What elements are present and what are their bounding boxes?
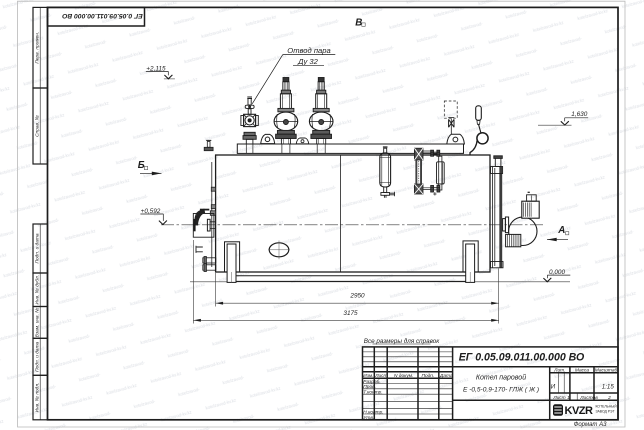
svg-text:Е -0,5-0,9-170- ГЛЖ ( Ж ): Е -0,5-0,9-170- ГЛЖ ( Ж )	[463, 387, 539, 394]
svg-text:Котел паровой: Котел паровой	[476, 374, 526, 382]
svg-text:2950: 2950	[349, 293, 365, 300]
svg-text:Пров.: Пров.	[363, 384, 376, 390]
svg-text:ЕГ 0.05.09.011.00.000 ВО: ЕГ 0.05.09.011.00.000 ВО	[459, 351, 585, 363]
svg-text:Изм.: Изм.	[363, 373, 373, 379]
svg-text:Подп.: Подп.	[422, 373, 435, 379]
svg-text:Инв. № подл.: Инв. № подл.	[35, 383, 41, 413]
svg-text:Дата: Дата	[439, 373, 453, 379]
svg-text:И: И	[551, 384, 556, 391]
svg-text:Справ. №: Справ. №	[35, 115, 41, 137]
svg-text:Отвод пара: Отвод пара	[287, 46, 330, 55]
svg-text:1,630: 1,630	[571, 111, 587, 118]
svg-text:Все размеры для справок: Все размеры для справок	[364, 337, 440, 345]
svg-text:Лит.: Лит.	[553, 368, 565, 374]
svg-text:А: А	[557, 225, 565, 236]
svg-text:Взам. инв. №: Взам. инв. №	[35, 308, 41, 338]
svg-text:Листов: Листов	[579, 395, 598, 401]
svg-text:N докум.: N докум.	[394, 373, 413, 379]
svg-text:Перв. примен.: Перв. примен.	[35, 32, 41, 64]
svg-text:КОТЕЛЬНЫЙ: КОТЕЛЬНЫЙ	[596, 405, 618, 409]
svg-text:Масштаб: Масштаб	[595, 368, 618, 374]
svg-text:Лист 1: Лист 1	[552, 395, 570, 401]
svg-text:Подп. и дата: Подп. и дата	[35, 233, 41, 263]
svg-text:Инв. № дубл.: Инв. № дубл.	[35, 275, 41, 305]
svg-text:KVZR: KVZR	[565, 405, 594, 417]
svg-text:ЕГ 0.05.09.011.00.000 ВО: ЕГ 0.05.09.011.00.000 ВО	[61, 12, 142, 19]
svg-text:Н.контр.: Н.контр.	[363, 409, 383, 415]
svg-text:Разраб.: Разраб.	[363, 379, 380, 385]
svg-text:Масса: Масса	[575, 368, 590, 374]
svg-text:Лист: Лист	[374, 373, 387, 379]
svg-text:Формат А3: Формат А3	[574, 422, 607, 428]
svg-text:Ду 32: Ду 32	[297, 57, 319, 66]
svg-text:Б: Б	[138, 160, 145, 171]
svg-text:3175: 3175	[343, 310, 358, 317]
svg-text:Подп. и дата: Подп. и дата	[35, 341, 41, 371]
svg-text:1:15: 1:15	[602, 384, 615, 391]
svg-text:ЗАВОД РЭТ: ЗАВОД РЭТ	[596, 409, 615, 413]
svg-text:В: В	[355, 18, 362, 29]
svg-text:Т.контр.: Т.контр.	[363, 390, 382, 396]
svg-text:2: 2	[607, 395, 611, 401]
svg-text:Утв.: Утв.	[363, 415, 374, 421]
